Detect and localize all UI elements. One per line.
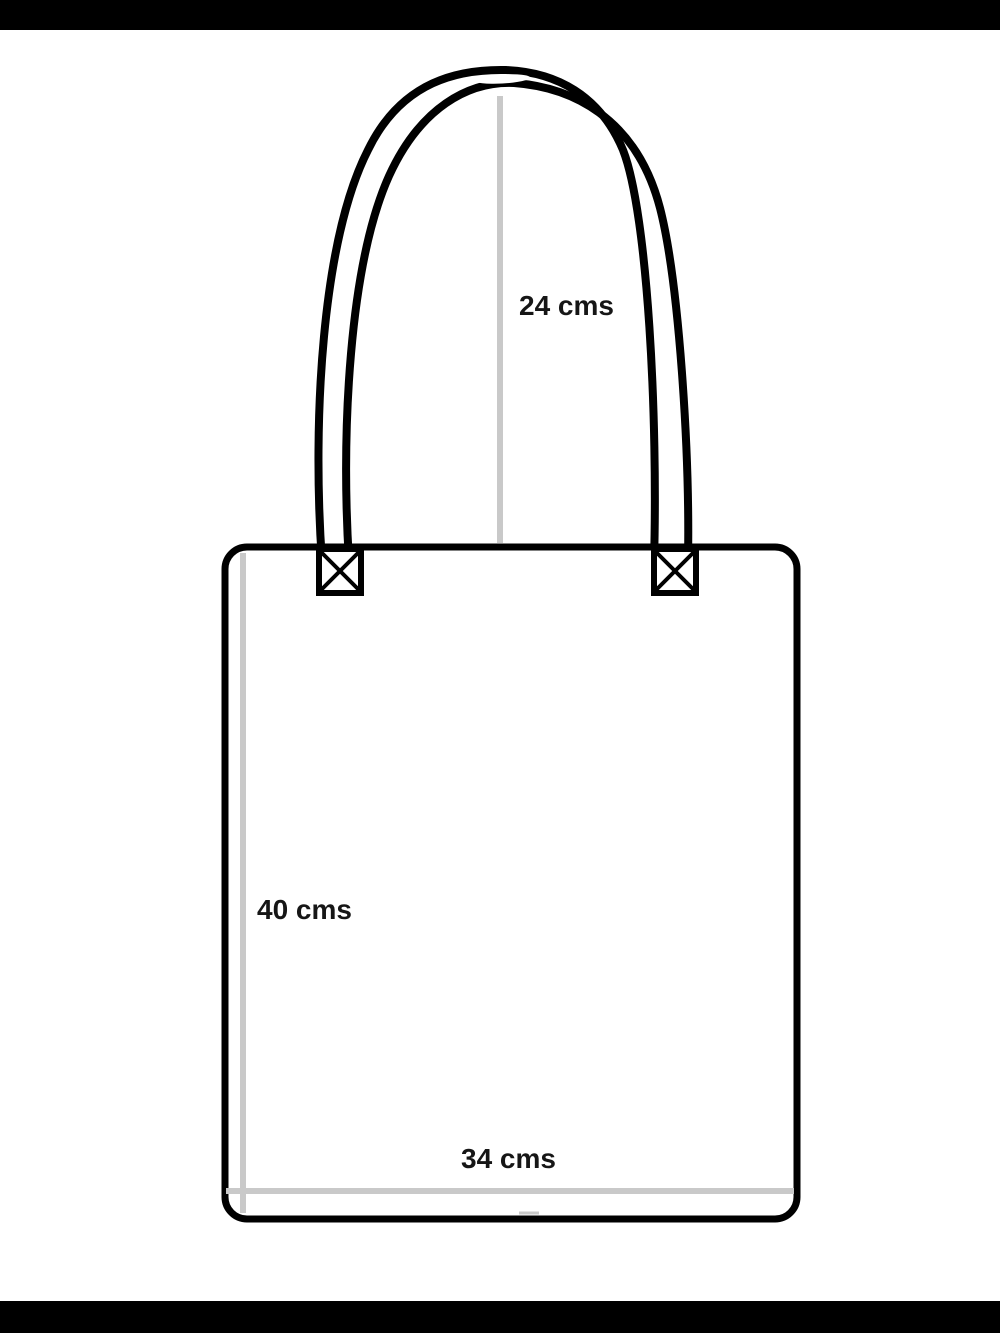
handle-height-label: 24 cms xyxy=(519,291,614,322)
handle-strap-inner-line xyxy=(346,83,688,562)
tote-bag-diagram xyxy=(0,0,1000,1333)
handle-attachment-left xyxy=(319,549,361,593)
diagram-canvas: 24 cms 40 cms 34 cms xyxy=(0,0,1000,1333)
handle-attachment-right xyxy=(654,549,696,593)
bag-width-label: 34 cms xyxy=(461,1144,556,1175)
bag-body-outline xyxy=(225,547,797,1219)
bag-height-label: 40 cms xyxy=(257,895,352,926)
